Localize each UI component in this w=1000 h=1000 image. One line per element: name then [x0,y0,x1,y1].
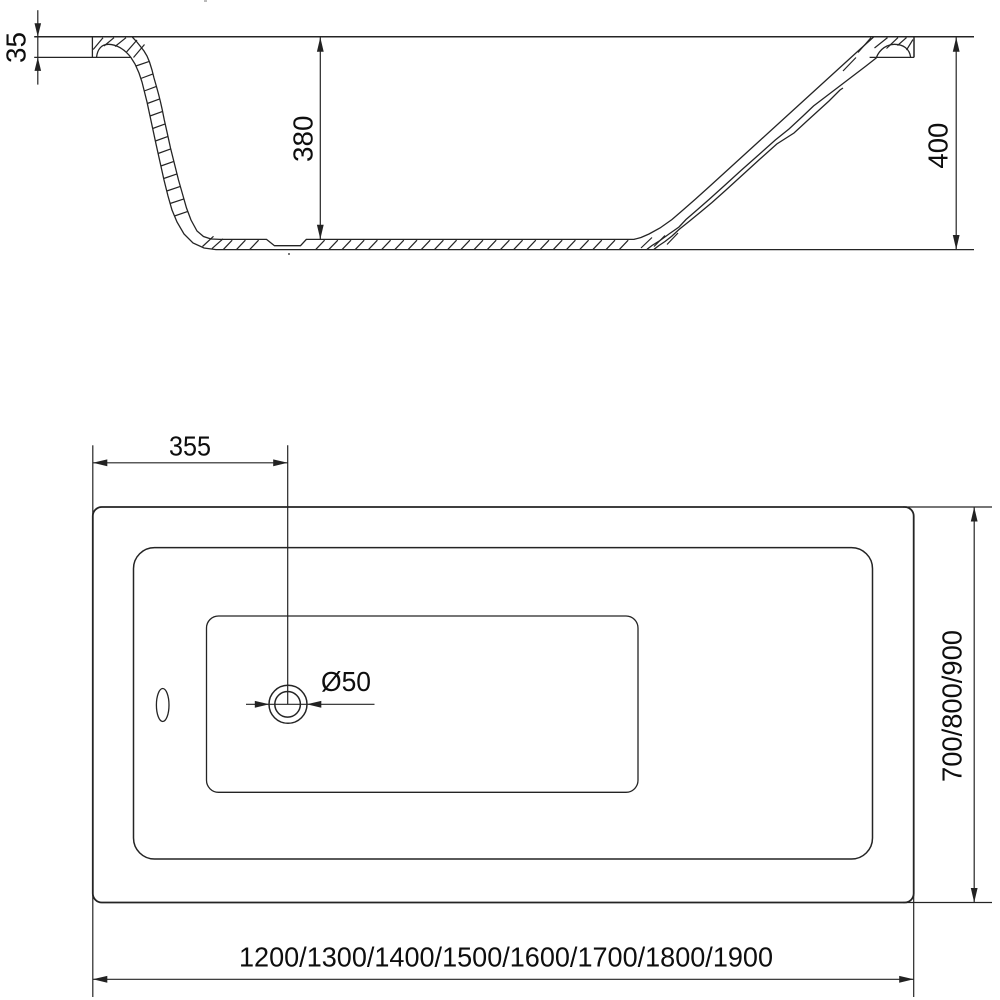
svg-text:400: 400 [923,123,954,169]
svg-text:Ø50: Ø50 [321,666,371,697]
svg-text:380: 380 [288,115,319,162]
svg-text:35: 35 [1,32,32,63]
svg-text:700/800/900: 700/800/900 [937,630,968,782]
svg-text:355: 355 [169,430,211,461]
svg-text:1200/1300/1400/1500/1600/1700/: 1200/1300/1400/1500/1600/1700/1800/1900 [239,942,773,973]
